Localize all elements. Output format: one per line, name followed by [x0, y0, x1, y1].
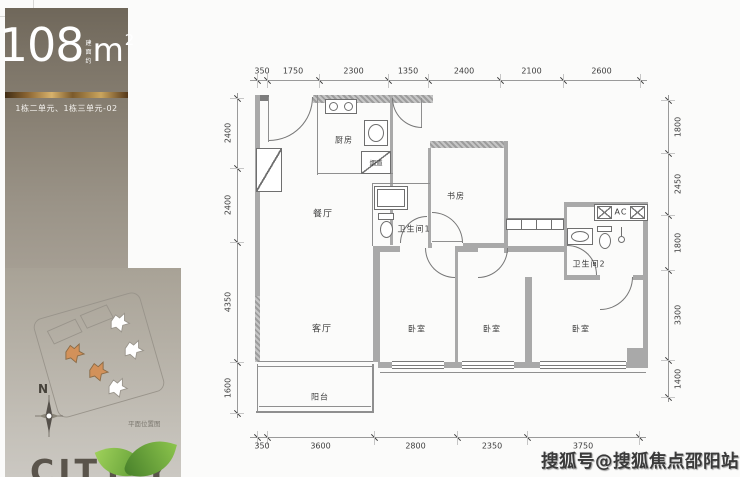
room-label-bathroom-1: 卫生间1: [397, 224, 430, 235]
dimension-label: 1800: [674, 116, 683, 136]
window: [462, 361, 514, 369]
vanity-basin: [571, 231, 589, 242]
dimension-label: 2400: [454, 67, 474, 76]
dimension-guide: [661, 397, 675, 398]
wall: [525, 277, 532, 362]
kitchen-sink-basin: [368, 124, 384, 142]
dimension-label: 2400: [224, 123, 233, 143]
line: [372, 183, 373, 246]
dimension-line: [237, 93, 238, 418]
room-label-study: 书房: [447, 191, 465, 202]
dimension-label: 2450: [674, 174, 683, 194]
line: [258, 366, 373, 367]
dimension-guide: [457, 431, 458, 445]
floorplan-poster: 108 建面约 m 2 1栋二单元、1栋三单元-02 平面位置图 N CITY …: [0, 0, 740, 477]
dimension-label: 2100: [521, 67, 541, 76]
dimension-guide: [319, 74, 320, 88]
dimension-line: [250, 437, 646, 438]
entry-cabinet-diagonal: [256, 148, 282, 192]
line: [372, 364, 374, 413]
room-label-balcony: 阳台: [311, 392, 329, 403]
dimension-guide: [661, 153, 675, 154]
line: [259, 406, 371, 407]
dimension-label: 3300: [674, 305, 683, 325]
bedroom-1-door-arc: [425, 248, 455, 278]
room-label-bedroom-1: 卧室: [408, 324, 426, 335]
dimension-label: 1400: [674, 368, 683, 388]
hall-closet: [506, 219, 564, 230]
toilet-1-tank: [378, 213, 394, 220]
floorplan-drawing: 厨房烟道餐厅卫生间1书房AC卫生间2客厅卧室卧室卧室阳台350175023001…: [0, 0, 740, 477]
stove-burner: [344, 102, 353, 111]
dimension-line: [250, 80, 647, 81]
dimension-label: 2800: [405, 442, 425, 451]
dimension-guide: [639, 431, 640, 445]
wall: [455, 250, 458, 362]
dimension-guide: [230, 413, 244, 414]
closet-divider: [521, 219, 522, 230]
dimension-guide: [661, 270, 675, 271]
entry-door-arc: [269, 97, 313, 141]
wall: [373, 250, 380, 362]
toilet-1-bowl: [380, 221, 393, 238]
ac-hatch: [630, 206, 645, 219]
dimension-guide: [230, 98, 244, 99]
dimension-guide: [267, 74, 268, 88]
window: [540, 361, 626, 369]
dimension-guide: [563, 74, 564, 88]
line: [372, 183, 430, 184]
dimension-label: 4350: [224, 292, 233, 312]
wall: [430, 141, 507, 148]
shower-arm: [621, 227, 622, 236]
dimension-line: [668, 95, 669, 402]
line: [257, 364, 258, 413]
dimension-label: 1800: [674, 232, 683, 252]
dimension-guide: [661, 360, 675, 361]
line: [380, 372, 646, 373]
dimension-guide: [661, 100, 675, 101]
study-door-arc: [432, 212, 463, 243]
wall: [504, 141, 508, 253]
ac-hatch: [597, 206, 612, 219]
toilet-2-bowl: [599, 233, 611, 249]
wall: [633, 275, 648, 280]
room-label-kitchen: 厨房: [335, 135, 353, 146]
dimension-guide: [257, 74, 258, 88]
dimension-guide: [428, 74, 429, 88]
window: [392, 361, 444, 369]
dimension-guide: [527, 431, 528, 445]
line: [256, 411, 374, 413]
room-label-bathroom-2: 卫生间2: [572, 259, 605, 270]
room-label-dining: 餐厅: [313, 207, 333, 220]
kitchen-door-arc: [392, 98, 422, 128]
wall: [508, 246, 564, 252]
line: [258, 361, 373, 362]
dimension-guide: [374, 431, 375, 445]
dimension-label: 3600: [310, 442, 330, 451]
room-label-bedroom-2: 卧室: [483, 324, 501, 335]
dimension-guide: [230, 242, 244, 243]
bedroom-3-door-arc: [600, 277, 633, 310]
toilet-2-tank: [597, 226, 612, 232]
room-label-flue: 烟道: [370, 157, 383, 167]
room-label-living: 客厅: [312, 322, 332, 335]
line: [317, 95, 318, 175]
dimension-guide: [640, 74, 641, 88]
wall: [564, 275, 600, 280]
bedroom-2-door-arc: [478, 248, 508, 278]
dimension-guide: [230, 362, 244, 363]
dimension-label: 1750: [283, 67, 303, 76]
stove-burner: [329, 102, 338, 111]
room-label-bedroom-3: 卧室: [572, 324, 590, 335]
wall: [255, 95, 260, 296]
dimension-guide: [388, 74, 389, 88]
dimension-label: 350: [254, 442, 269, 451]
dimension-label: 350: [254, 67, 269, 76]
wall: [255, 296, 260, 362]
closet-divider: [536, 219, 537, 230]
dimension-label: 2600: [591, 67, 611, 76]
bathtub-inner: [377, 189, 405, 207]
room-label-ac: AC: [615, 208, 628, 217]
closet-divider: [551, 219, 552, 230]
dimension-guide: [661, 215, 675, 216]
dimension-guide: [500, 74, 501, 88]
dimension-label: 1600: [224, 377, 233, 397]
dimension-label: 2350: [482, 442, 502, 451]
watermark-text: 搜狐号@搜狐焦点邵阳站: [541, 448, 739, 473]
dimension-label: 2300: [343, 67, 363, 76]
dimension-label: 2400: [224, 195, 233, 215]
dimension-label: 1350: [398, 67, 418, 76]
wall: [627, 348, 643, 364]
wall: [643, 202, 648, 364]
shower-head: [618, 236, 625, 243]
dimension-guide: [230, 168, 244, 169]
